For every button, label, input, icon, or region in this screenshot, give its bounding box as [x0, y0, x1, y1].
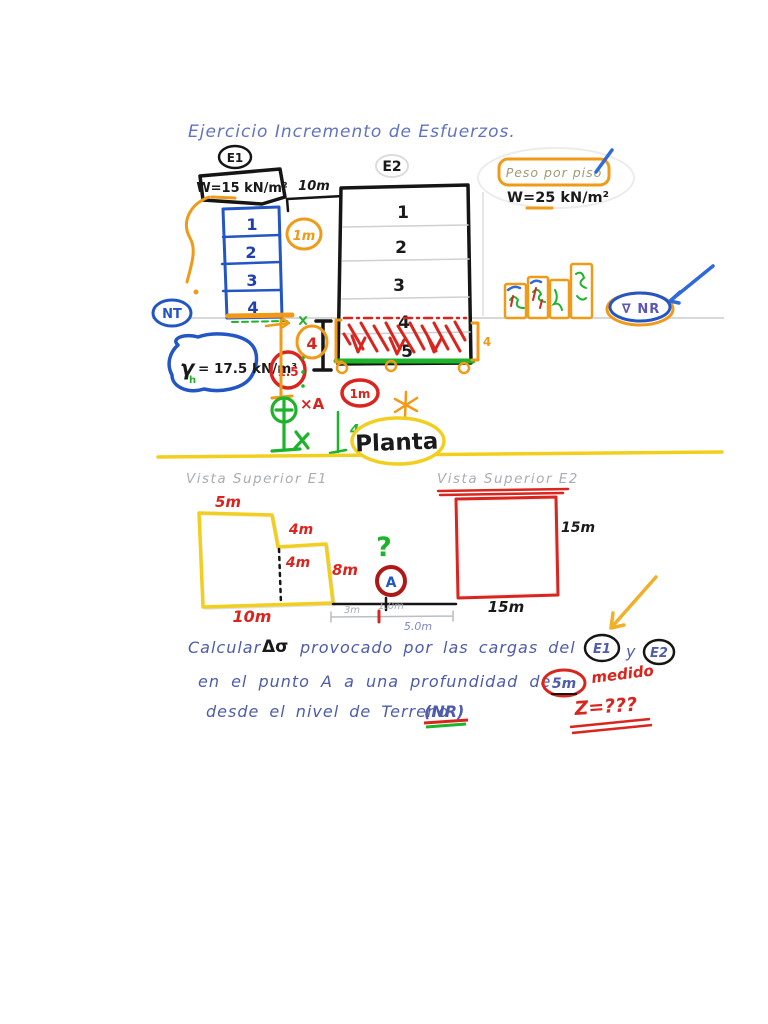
circled-1m-red-label: 1m [350, 387, 371, 401]
point-a-label: A [386, 575, 397, 591]
e1-floor-1: 1 [246, 215, 257, 234]
plan-point-a-group: ? A 3m 1.0m 5.0m [331, 532, 456, 633]
dim-1-0m: 1.0m [378, 601, 404, 612]
orange-asterisk [395, 392, 417, 418]
green-dot [301, 356, 305, 360]
e1-label: E1 [227, 151, 244, 165]
scanned-exercise-page: Ejercicio Incremento de Esfuerzos. E1 W=… [0, 0, 768, 1024]
problem-statement: Calcular Δσ provocado por las cargas del… [188, 635, 674, 733]
plan-view-e2: Vista Superior E2 15m 15m [437, 471, 595, 616]
circled-4-label: 4 [306, 334, 317, 353]
dim-4m-line [330, 412, 346, 453]
e2-floor-1: 1 [397, 203, 409, 223]
depth-bracket-right-orange [472, 323, 478, 360]
peso-por-piso-annotation: Peso por piso W=25 kN/m² [478, 148, 634, 208]
e1-floor-3: 3 [246, 271, 257, 290]
e1-floor-line [223, 290, 281, 291]
z-unknown: Z=??? [573, 694, 638, 720]
e1-base-green [232, 321, 287, 322]
depth-label-right: 4 [483, 335, 491, 349]
dim-10m-line [287, 196, 343, 211]
e1-floor-2: 2 [245, 243, 256, 262]
mini-building [571, 264, 592, 318]
circled-e1-label: E1 [593, 642, 611, 657]
e1-load-underline [212, 197, 235, 198]
e2-floor-2: 2 [395, 238, 407, 258]
circled-e2-label: E2 [650, 646, 668, 661]
orange-dot [194, 290, 199, 295]
nt-marker: NT [153, 300, 191, 326]
problem-line1-y: y [625, 642, 636, 661]
nr-underline-green [426, 724, 466, 727]
plan-e2-title: Vista Superior E2 [437, 471, 579, 487]
delta-sigma: Δσ [262, 637, 288, 657]
plan-e1-dim-right: 8m [332, 561, 358, 579]
green-dot [301, 370, 305, 374]
medido-red: medido [590, 661, 654, 687]
plan-e2-dim-bottom: 15m [488, 598, 525, 616]
plan-e1-dim-top: 5m [215, 493, 241, 511]
e2-label: E2 [382, 159, 401, 175]
point-a-elevation-label: ×A [300, 395, 325, 413]
nr-marker: ∇ NR [607, 266, 713, 325]
nr-label: ∇ NR [622, 302, 660, 317]
problem-line2-a: en el punto A a una profundidad de [198, 672, 551, 691]
planta-label: Planta [355, 429, 439, 458]
peso-title: Peso por piso [506, 165, 603, 180]
yellow-arrow [611, 577, 656, 628]
mini-building [550, 280, 569, 318]
nt-label: NT [162, 307, 182, 322]
circled-1m-orange-label: 1m [293, 229, 316, 244]
green-dot [301, 384, 305, 388]
question-mark: ? [376, 532, 392, 563]
plan-view-e1: Vista Superior E1 5m 4m 4m 8m 10m [186, 471, 358, 626]
e2-floor-3: 3 [393, 276, 405, 296]
sketch-canvas: Ejercicio Incremento de Esfuerzos. E1 W=… [0, 0, 768, 1024]
plan-e1-dim-step: 4m [288, 522, 313, 538]
plan-e1-dim-bottom: 10m [233, 607, 272, 626]
e1-base-orange [228, 315, 292, 316]
problem-line1-a: Calcular [188, 638, 262, 657]
building-e2: E2 1 2 3 4 5 [314, 155, 491, 373]
nr-text: (NR) [424, 702, 464, 721]
gamma-annotation: γ h = 17.5 kN/m³ [169, 334, 297, 391]
plan-e2-dim-right: 15m [561, 520, 595, 536]
problem-line3-a: desde el nivel de Terreno [206, 702, 449, 721]
plan-e2-outline [456, 497, 558, 598]
dim-5-0m: 5.0m [404, 620, 432, 633]
dim-10m-label: 10m [298, 179, 330, 194]
plan-e2-title-underline [438, 489, 568, 495]
problem-line1-b: provocado por las cargas del [299, 638, 576, 657]
orange-curve-mark [186, 197, 209, 282]
e1-load-text: W=15 kN/m² [196, 181, 287, 196]
dim-3m: 3m [344, 605, 360, 616]
plan-e1-title: Vista Superior E1 [186, 471, 328, 487]
gamma-subscript: h [189, 375, 196, 386]
plan-e1-dim-inner: 4m [285, 555, 310, 571]
planta-divider: Planta [158, 418, 722, 464]
z-underline [570, 719, 652, 733]
blue-arrow-to-nr [670, 266, 713, 303]
mini-buildings-sketch [505, 264, 592, 318]
peso-load: W=25 kN/m² [507, 190, 609, 206]
exercise-title: Ejercicio Incremento de Esfuerzos. [188, 122, 516, 142]
building-e1: E1 W=15 kN/m² 10m 1 2 3 4 1m [186, 146, 343, 327]
circled-5m-label: 5m [552, 676, 576, 692]
